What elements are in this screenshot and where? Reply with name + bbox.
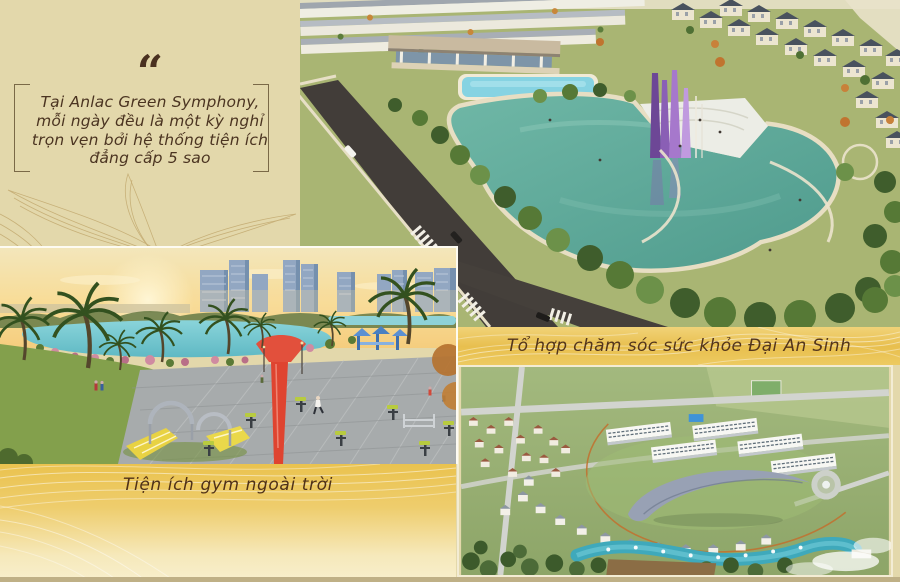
rooftop-pool	[689, 414, 704, 422]
outdoor-gym-photo	[0, 246, 458, 464]
brochure-page: “ Tại Anlac Green Symphony, mỗi ngày đều…	[0, 0, 900, 582]
sports-field	[752, 381, 781, 397]
quote-line: trọn vẹn bởi hệ thống tiện ích	[7, 131, 293, 150]
quote-line: mỗi ngày đều là một kỳ nghỉ	[7, 112, 293, 131]
caption-strip-health: Tổ hợp chăm sóc sức khỏe Đại An Sinh	[458, 327, 900, 365]
caption-panel-gym: Tiện ích gym ngoài trời	[0, 462, 456, 582]
clubhouse	[387, 35, 560, 74]
quote-text: Tại Anlac Green Symphony, mỗi ngày đều l…	[7, 93, 293, 168]
health-complex-photo	[457, 365, 893, 577]
quote-line: Tại Anlac Green Symphony,	[7, 93, 293, 112]
far-lake	[328, 316, 456, 325]
caption-outdoor-gym: Tiện ích gym ngoài trời	[0, 475, 456, 495]
caption-health-complex: Tổ hợp chăm sóc sức khỏe Đại An Sinh	[458, 336, 900, 356]
quote-line: đẳng cấp 5 sao	[7, 149, 293, 168]
roundabout-fountain	[811, 470, 840, 499]
bottom-edge-strip	[0, 577, 900, 582]
